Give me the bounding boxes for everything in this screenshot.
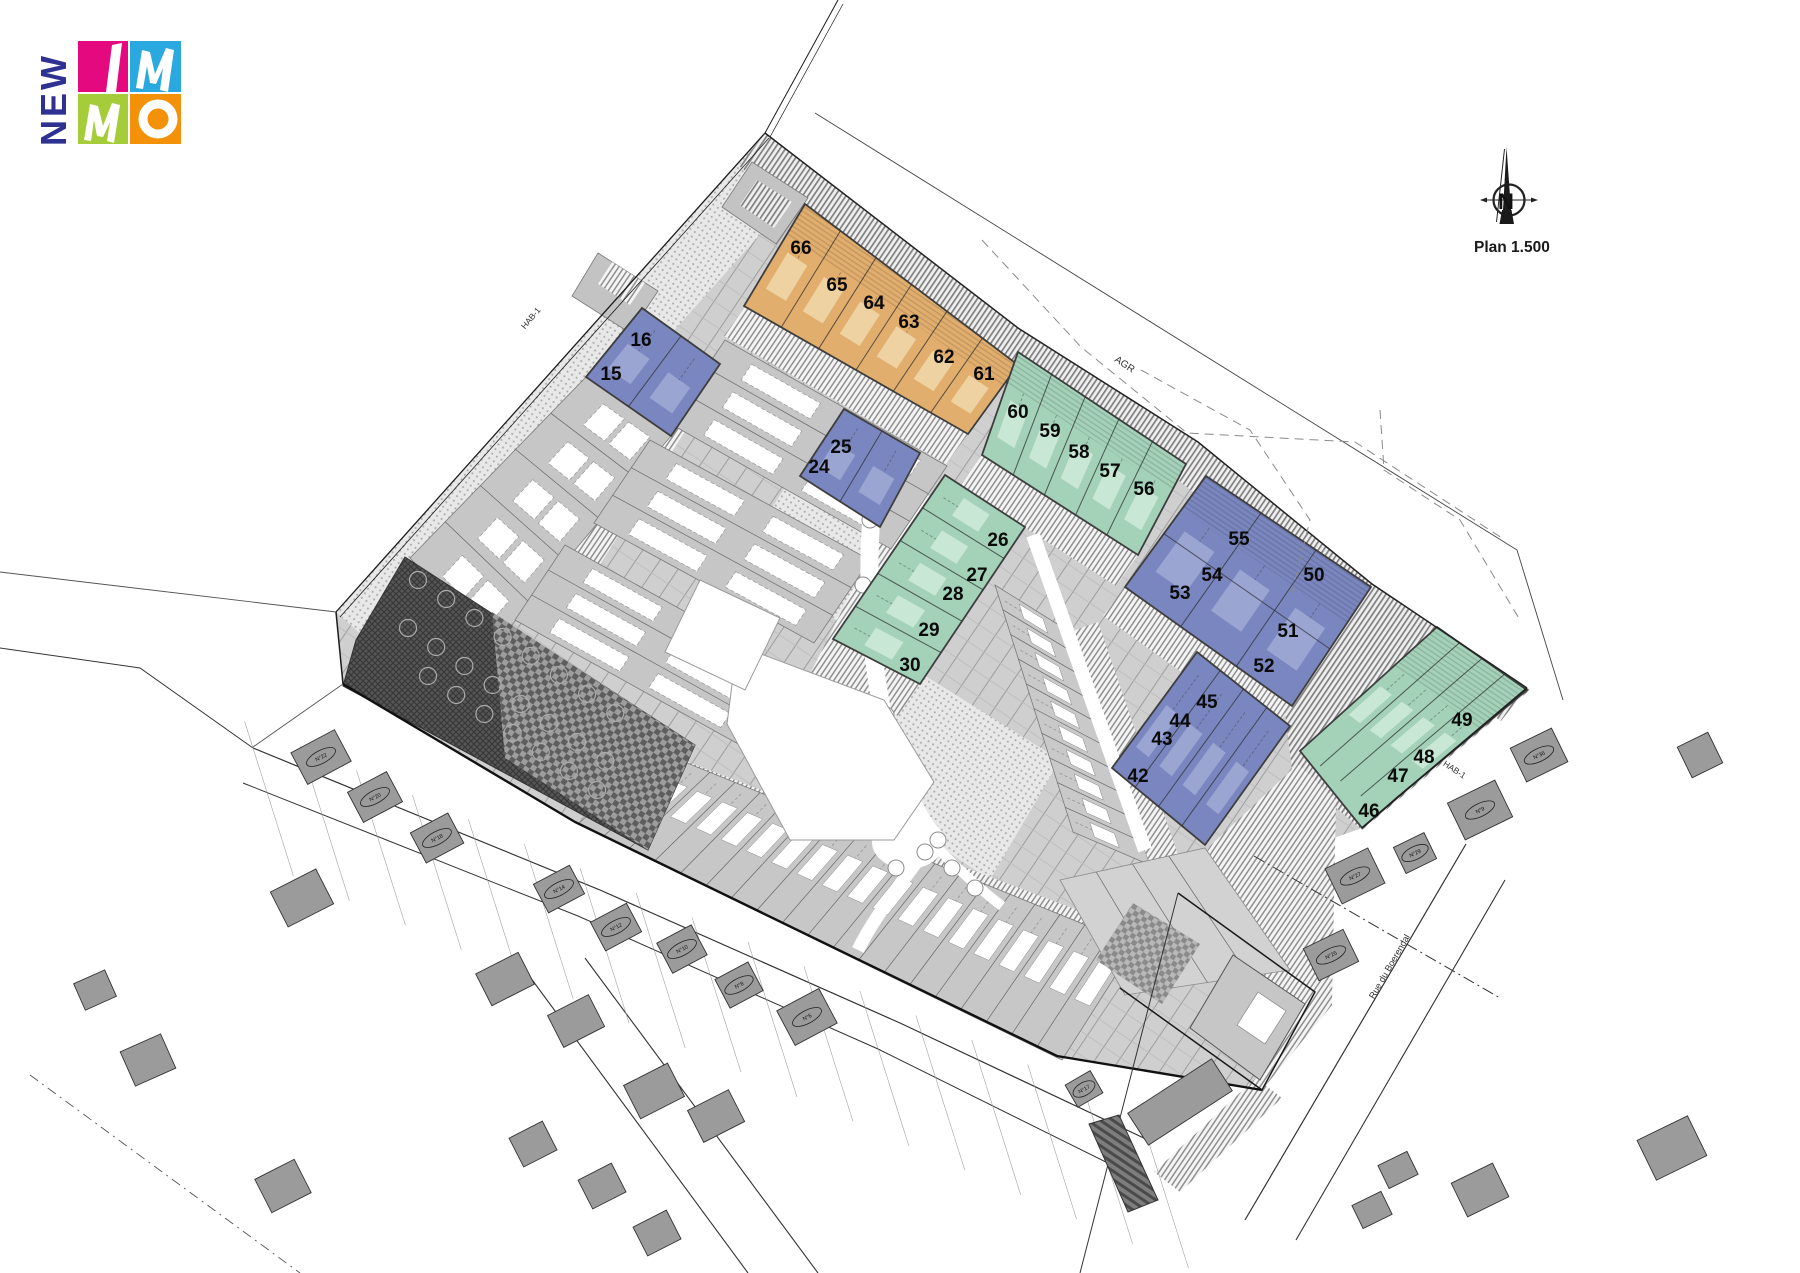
- svg-text:45: 45: [1196, 692, 1218, 713]
- svg-text:30: 30: [899, 655, 920, 676]
- svg-text:66: 66: [790, 238, 811, 259]
- svg-text:42: 42: [1127, 766, 1148, 787]
- svg-text:52: 52: [1253, 656, 1274, 677]
- svg-text:63: 63: [898, 312, 919, 333]
- svg-text:15: 15: [600, 364, 622, 385]
- svg-text:N: N: [1498, 189, 1514, 214]
- svg-text:24: 24: [808, 457, 830, 478]
- svg-text:50: 50: [1303, 565, 1324, 586]
- svg-text:61: 61: [973, 364, 995, 385]
- svg-text:25: 25: [830, 437, 852, 458]
- svg-text:53: 53: [1169, 583, 1190, 604]
- svg-text:55: 55: [1228, 529, 1250, 550]
- svg-text:27: 27: [966, 565, 987, 586]
- svg-text:26: 26: [987, 530, 1008, 551]
- svg-text:Plan 1.500: Plan 1.500: [1474, 239, 1550, 256]
- svg-text:60: 60: [1007, 402, 1028, 423]
- svg-text:49: 49: [1451, 710, 1472, 731]
- svg-text:64: 64: [863, 293, 885, 314]
- svg-text:65: 65: [826, 275, 848, 296]
- svg-text:NEW: NEW: [33, 53, 74, 146]
- svg-text:54: 54: [1201, 565, 1223, 586]
- svg-text:58: 58: [1068, 442, 1089, 463]
- svg-text:46: 46: [1358, 801, 1379, 822]
- svg-text:57: 57: [1099, 461, 1120, 482]
- svg-text:29: 29: [918, 620, 939, 641]
- svg-text:16: 16: [630, 330, 651, 351]
- svg-text:48: 48: [1413, 747, 1434, 768]
- svg-text:51: 51: [1277, 621, 1299, 642]
- svg-text:44: 44: [1169, 711, 1191, 732]
- svg-text:47: 47: [1387, 766, 1408, 787]
- svg-text:28: 28: [942, 584, 963, 605]
- svg-text:43: 43: [1151, 729, 1172, 750]
- svg-text:59: 59: [1039, 421, 1060, 442]
- svg-text:56: 56: [1133, 479, 1154, 500]
- svg-text:62: 62: [933, 347, 954, 368]
